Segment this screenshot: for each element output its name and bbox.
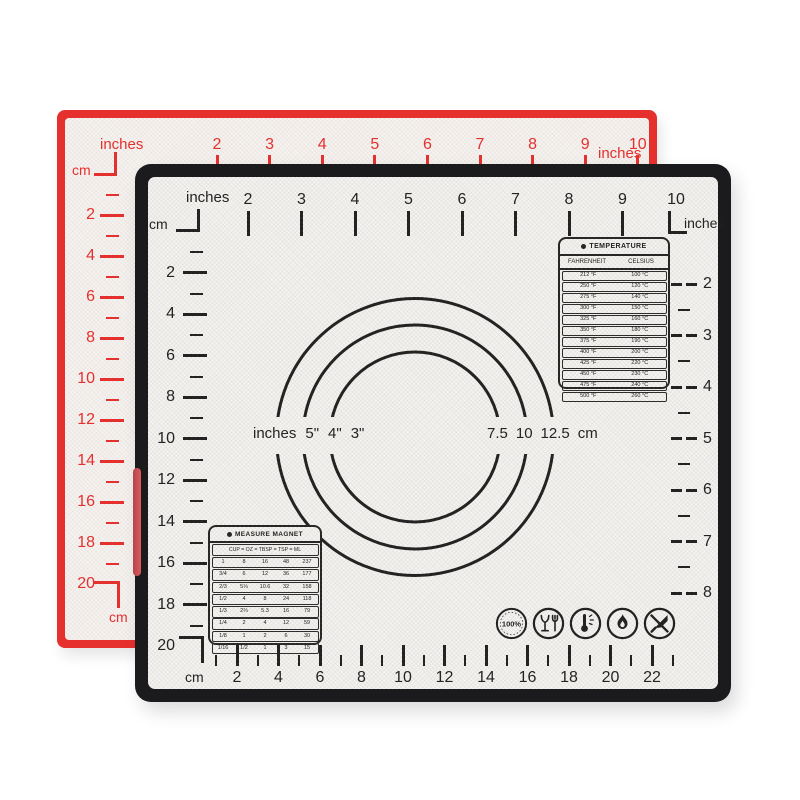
circle-cm-labels: 7.5 10 12.5 cm <box>487 426 598 441</box>
black-mat-markings: inches cm inches 20 cm inches 5" 4" 3" <box>135 164 731 702</box>
cm-ruler-minor-tick <box>106 563 119 565</box>
certification-icons: 100% <box>495 607 676 640</box>
inch-ruler-number: 3 <box>265 137 274 153</box>
temperature-cell: 250 °F <box>563 284 615 290</box>
measure-cell: 10.6 <box>255 585 276 591</box>
bottom-ruler-minor-tick <box>464 655 466 666</box>
temperature-cell: 375 °F <box>563 339 615 345</box>
measure-cell: 237 <box>297 560 318 566</box>
cm-ruler-minor-tick <box>106 440 119 442</box>
inch-ruler-number: 6 <box>458 192 467 208</box>
cm-ruler-tick <box>100 542 124 545</box>
inch-ruler-number: 10 <box>667 192 685 208</box>
cm-ruler-minor-tick <box>106 358 119 360</box>
bottom-ruler-tick <box>236 645 239 666</box>
temperature-row: 350 °F180 °C <box>562 326 667 336</box>
svg-text:100%: 100% <box>502 619 522 628</box>
cm-ruler-tick <box>100 255 124 258</box>
temperature-cell: 160 °C <box>614 317 666 323</box>
inch-ruler-tick <box>461 211 464 236</box>
cm-ruler-tick <box>183 479 207 482</box>
measure-magnet-table: MEASURE MAGNET CUP = OZ = TBSP = TSP = M… <box>208 525 322 645</box>
temperature-cell: 325 °F <box>563 317 615 323</box>
cm-ruler-number: 8 <box>143 389 175 405</box>
temperature-row: 275 °F140 °C <box>562 293 667 303</box>
measure-cell: 1/8 <box>213 634 234 640</box>
measure-cell: 36 <box>276 572 297 578</box>
bottom-ruler-minor-tick <box>630 655 632 666</box>
inch-ruler-number: 4 <box>318 137 327 153</box>
measure-cell: 177 <box>297 572 318 578</box>
bottom-ruler-number: 22 <box>643 670 661 686</box>
temperature-cell: 350 °F <box>563 328 615 334</box>
bottom-ruler-number: 18 <box>560 670 578 686</box>
inch-ruler-number: 6 <box>423 137 432 153</box>
inch-ruler-number: 4 <box>351 192 360 208</box>
cm-ruler-number: 18 <box>143 597 175 613</box>
temperature-cell: 190 °C <box>614 339 666 345</box>
black-corner-bracket <box>176 209 200 232</box>
circle-cm-75: 7.5 <box>487 426 508 441</box>
temperature-table: TEMPERATURE FAHRENHEIT CELSIUS 212 °F100… <box>558 237 670 389</box>
temperature-cell: 220 °C <box>614 361 666 367</box>
measure-cell: 4 <box>255 621 276 627</box>
right-ruler-minor-tick <box>678 515 690 517</box>
inch-ruler-number: 2 <box>244 192 253 208</box>
red-inches-label: inches <box>100 137 143 152</box>
temperature-cell: 475 °F <box>563 383 615 389</box>
bottom-ruler-number: 8 <box>357 670 366 686</box>
temperature-cell: 212 °F <box>563 273 615 279</box>
cm-ruler-minor-tick <box>190 376 203 378</box>
circle-left-unit: inches <box>253 426 296 441</box>
right-ruler-dash <box>686 489 697 492</box>
cm-ruler-tick <box>100 214 124 217</box>
red-mat-edge-tab <box>133 468 141 576</box>
circle-right-unit: cm <box>578 426 598 441</box>
measure-cell: 30 <box>297 634 318 640</box>
cm-ruler-tick <box>100 460 124 463</box>
temperature-cell: 400 °F <box>563 350 615 356</box>
bottom-ruler-minor-tick <box>672 655 674 666</box>
inch-ruler-tick <box>621 211 624 236</box>
bottom-ruler-minor-tick <box>257 655 259 666</box>
right-ruler-number: 5 <box>703 431 712 447</box>
bottom-ruler-minor-tick <box>215 655 217 666</box>
cm-ruler-minor-tick <box>106 276 119 278</box>
cm-ruler-number: 14 <box>63 453 95 469</box>
temperature-cell: 100 °C <box>614 273 666 279</box>
cm-ruler-number: 2 <box>143 265 175 281</box>
circle-inch-3: 3" <box>351 426 365 441</box>
measure-cell: 6 <box>276 634 297 640</box>
measure-cell: 2⅔ <box>234 609 255 615</box>
cm-ruler-minor-tick <box>190 334 203 336</box>
inch-ruler-number: 8 <box>528 137 537 153</box>
cm-ruler-number: 16 <box>143 555 175 571</box>
temperature-row: 500 °F260 °C <box>562 392 667 402</box>
measure-cell: 2 <box>255 634 276 640</box>
measure-row: 1/812630 <box>212 631 319 642</box>
right-ruler-dash <box>686 437 697 440</box>
temperature-cell: 240 °C <box>614 383 666 389</box>
black-inches-top-right-label: inches <box>684 216 724 230</box>
right-ruler-dash <box>686 283 697 286</box>
bottom-ruler-minor-tick <box>547 655 549 666</box>
cm-ruler-minor-tick <box>190 542 203 544</box>
measure-cell: 15 <box>297 646 318 652</box>
cm-ruler-minor-tick <box>106 317 119 319</box>
temperature-table-header: FAHRENHEIT CELSIUS <box>560 256 668 270</box>
measure-cell: 8 <box>255 597 276 603</box>
cm-ruler-number: 18 <box>63 535 95 551</box>
right-ruler-minor-tick <box>678 309 690 311</box>
cm-ruler-minor-tick <box>106 481 119 483</box>
measure-row: 3/461236177 <box>212 569 319 580</box>
bottom-ruler-minor-tick <box>381 655 383 666</box>
measure-cell: 118 <box>297 597 318 603</box>
bottom-ruler-tick <box>319 645 322 666</box>
cm-ruler-tick <box>183 354 207 357</box>
bottom-ruler-minor-tick <box>423 655 425 666</box>
black-bottom-corner-bracket <box>179 636 204 663</box>
temperature-cell: 140 °C <box>614 295 666 301</box>
cm-ruler-tick <box>183 562 207 565</box>
measure-row: 1/32⅔5.31679 <box>212 606 319 617</box>
measure-row: 1/4241259 <box>212 618 319 629</box>
bottom-ruler-number: 16 <box>519 670 537 686</box>
inch-ruler-number: 9 <box>618 192 627 208</box>
right-ruler-dash <box>671 334 682 337</box>
measure-cell: 24 <box>276 597 297 603</box>
bottom-ruler-tick <box>277 645 280 666</box>
measure-cell: 48 <box>276 560 297 566</box>
inch-ruler-tick <box>247 211 250 236</box>
measure-table-title: MEASURE MAGNET <box>210 527 320 543</box>
temperature-cell: 300 °F <box>563 306 615 312</box>
cm-ruler-number: 6 <box>143 348 175 364</box>
right-ruler-number: 2 <box>703 276 712 292</box>
red-cm-bottom-label: cm <box>109 610 128 624</box>
bottom-ruler-minor-tick <box>589 655 591 666</box>
temperature-cell: 180 °C <box>614 328 666 334</box>
inch-ruler-number: 8 <box>565 192 574 208</box>
cm-ruler-number: 14 <box>143 514 175 530</box>
temperature-cell: 150 °C <box>614 306 666 312</box>
inch-ruler-number: 2 <box>213 137 222 153</box>
measure-cell: 16 <box>255 560 276 566</box>
temperature-cell: 450 °F <box>563 372 615 378</box>
measure-cell: 3/4 <box>213 572 234 578</box>
right-ruler-dash <box>671 540 682 543</box>
black-cm-corner-label: cm <box>149 217 168 231</box>
measure-row: 2/35⅓10.632158 <box>212 582 319 593</box>
temperature-row: 450 °F230 °C <box>562 370 667 380</box>
measure-cell: 32 <box>276 585 297 591</box>
cm-ruler-minor-tick <box>190 293 203 295</box>
open-flame-icon <box>606 607 639 640</box>
cm-ruler-number: 4 <box>63 248 95 264</box>
black-inches-label: inches <box>186 190 229 205</box>
cm-ruler-tick <box>183 520 207 523</box>
temperature-rows: 212 °F100 °C250 °F120 °C275 °F140 °C300 … <box>560 271 668 402</box>
temperature-row: 325 °F160 °C <box>562 315 667 325</box>
right-ruler-number: 3 <box>703 328 712 344</box>
cm-ruler-minor-tick <box>106 522 119 524</box>
red-cm-corner-label: cm <box>72 163 91 177</box>
temperature-cell: 275 °F <box>563 295 615 301</box>
temperature-cell: 230 °C <box>614 372 666 378</box>
measure-cell: 5⅓ <box>234 585 255 591</box>
right-ruler-number: 8 <box>703 585 712 601</box>
measure-cell: 2/3 <box>213 585 234 591</box>
bullet-dot-icon <box>581 244 586 249</box>
food-safe-glass-fork-icon <box>532 607 565 640</box>
cm-ruler-number: 2 <box>63 207 95 223</box>
inch-ruler-number: 10 <box>629 137 647 153</box>
bottom-ruler-number: 20 <box>602 670 620 686</box>
inch-ruler-tick <box>407 211 410 236</box>
temperature-row: 400 °F200 °C <box>562 348 667 358</box>
inch-ruler-number: 5 <box>404 192 413 208</box>
bottom-ruler-number: 6 <box>316 670 325 686</box>
cm-ruler-number: 12 <box>63 412 95 428</box>
cm-ruler-minor-tick <box>106 235 119 237</box>
circle-inch-labels: inches 5" 4" 3" <box>253 426 364 441</box>
measure-cell: 6 <box>234 572 255 578</box>
temperature-title-text: TEMPERATURE <box>589 243 646 250</box>
right-ruler-number: 4 <box>703 379 712 395</box>
temperature-row: 250 °F120 °C <box>562 282 667 292</box>
measure-cell: 2 <box>234 621 255 627</box>
cm-ruler-minor-tick <box>190 251 203 253</box>
red-terminal-number: 20 <box>63 576 95 592</box>
inch-ruler-number: 7 <box>476 137 485 153</box>
bottom-ruler-tick <box>402 645 405 666</box>
right-ruler-minor-tick <box>678 412 690 414</box>
measure-cell: 16 <box>276 609 297 615</box>
right-ruler-dash <box>686 386 697 389</box>
measure-cell: 4 <box>234 597 255 603</box>
measure-row: 1/24824118 <box>212 594 319 605</box>
measure-cell: 158 <box>297 585 318 591</box>
cm-ruler-tick <box>183 396 207 399</box>
cm-ruler-number: 12 <box>143 472 175 488</box>
cm-ruler-tick <box>100 378 124 381</box>
right-ruler-dash <box>671 283 682 286</box>
bottom-ruler-tick <box>443 645 446 666</box>
bottom-ruler-minor-tick <box>506 655 508 666</box>
temperature-cell: 200 °C <box>614 350 666 356</box>
bottom-ruler-number: 2 <box>233 670 242 686</box>
temperature-row: 375 °F190 °C <box>562 337 667 347</box>
measure-row: 1/161/21315 <box>212 643 319 654</box>
right-ruler-minor-tick <box>678 463 690 465</box>
temperature-cell: 260 °C <box>614 394 666 400</box>
cm-ruler-number: 6 <box>63 289 95 305</box>
bottom-ruler-tick <box>360 645 363 666</box>
circle-cm-125: 12.5 <box>541 426 570 441</box>
right-ruler-dash <box>671 592 682 595</box>
red-bottom-corner-bracket <box>93 581 120 608</box>
measure-cell: 5.3 <box>255 609 276 615</box>
cm-ruler-tick <box>183 313 207 316</box>
cm-ruler-number: 4 <box>143 306 175 322</box>
bottom-ruler-tick <box>568 645 571 666</box>
black-pastry-mat: inches cm inches 20 cm inches 5" 4" 3" <box>135 164 731 702</box>
circle-inch-4: 4" <box>328 426 342 441</box>
temperature-cell: 425 °F <box>563 361 615 367</box>
inch-ruler-number: 9 <box>581 137 590 153</box>
measure-cell: 1 <box>213 560 234 566</box>
measure-cell: 1/3 <box>213 609 234 615</box>
cm-ruler-tick <box>100 419 124 422</box>
measure-cell: 1 <box>234 634 255 640</box>
cm-ruler-minor-tick <box>190 583 203 585</box>
measure-cell: 8 <box>234 560 255 566</box>
circle-cm-10: 10 <box>516 426 533 441</box>
right-ruler-number: 6 <box>703 482 712 498</box>
black-cm-bottom-label: cm <box>185 670 204 684</box>
cm-ruler-tick <box>100 501 124 504</box>
measure-cell: 1/4 <box>213 621 234 627</box>
inch-ruler-tick <box>568 211 571 236</box>
measure-row: 181648237 <box>212 557 319 568</box>
inch-ruler-number: 5 <box>370 137 379 153</box>
bottom-ruler-minor-tick <box>340 655 342 666</box>
bottom-ruler-number: 12 <box>436 670 454 686</box>
right-ruler-minor-tick <box>678 566 690 568</box>
temperature-row: 212 °F100 °C <box>562 271 667 281</box>
temperature-cell: 120 °C <box>614 284 666 290</box>
cm-ruler-tick <box>100 296 124 299</box>
cm-ruler-minor-tick <box>106 399 119 401</box>
heat-resistant-thermometer-icon <box>569 607 602 640</box>
temperature-row: 475 °F240 °C <box>562 381 667 391</box>
measure-cell: 79 <box>297 609 318 615</box>
right-ruler-dash <box>686 540 697 543</box>
cm-ruler-number: 10 <box>63 371 95 387</box>
bottom-ruler-number: 14 <box>477 670 495 686</box>
cm-ruler-number: 10 <box>143 431 175 447</box>
measure-cell: 12 <box>255 572 276 578</box>
inch-ruler-number: 3 <box>297 192 306 208</box>
bottom-ruler-number: 10 <box>394 670 412 686</box>
measure-cell: 1/16 <box>213 646 234 652</box>
cm-ruler-minor-tick <box>190 500 203 502</box>
inch-ruler-number: 7 <box>511 192 520 208</box>
right-ruler-minor-tick <box>678 360 690 362</box>
bottom-ruler-tick <box>526 645 529 666</box>
cm-ruler-tick <box>183 271 207 274</box>
bottom-ruler-number: 4 <box>274 670 283 686</box>
inch-ruler-tick <box>300 211 303 236</box>
measure-table-header: CUP = OZ = TBSP = TSP = ML <box>212 544 319 556</box>
right-ruler-number: 7 <box>703 534 712 550</box>
right-ruler-dash <box>671 437 682 440</box>
measure-cell: 59 <box>297 621 318 627</box>
measure-cell: 1 <box>255 646 276 652</box>
cm-ruler-minor-tick <box>106 194 119 196</box>
right-ruler-dash <box>686 592 697 595</box>
right-ruler-dash <box>686 334 697 337</box>
temperature-row: 300 °F150 °C <box>562 304 667 314</box>
circle-inch-5: 5" <box>305 426 319 441</box>
temperature-cell: 500 °F <box>563 394 615 400</box>
no-knife-cut-icon <box>643 607 676 640</box>
cm-ruler-tick <box>100 337 124 340</box>
cm-ruler-number: 8 <box>63 330 95 346</box>
cm-ruler-minor-tick <box>190 417 203 419</box>
measure-cell: 12 <box>276 621 297 627</box>
bottom-ruler-minor-tick <box>298 655 300 666</box>
celsius-column-header: CELSIUS <box>614 259 668 265</box>
temperature-table-title: TEMPERATURE <box>560 239 668 256</box>
bottom-ruler-tick <box>651 645 654 666</box>
measure-title-text: MEASURE MAGNET <box>235 531 303 538</box>
product-photo: inches cm 20 cm inches 23456789102468101… <box>0 0 800 800</box>
cm-ruler-minor-tick <box>190 625 203 627</box>
measure-cell: 1/2 <box>213 597 234 603</box>
cm-ruler-number: 16 <box>63 494 95 510</box>
fahrenheit-column-header: FAHRENHEIT <box>560 259 614 265</box>
bullet-dot-icon <box>227 532 232 537</box>
bottom-ruler-tick <box>485 645 488 666</box>
cm-ruler-tick <box>183 437 207 440</box>
black-terminal-number: 20 <box>143 638 175 654</box>
right-ruler-dash <box>671 489 682 492</box>
temperature-row: 425 °F220 °C <box>562 359 667 369</box>
inch-ruler-tick <box>354 211 357 236</box>
red-corner-bracket <box>94 152 117 176</box>
cm-ruler-tick <box>183 603 207 606</box>
bottom-ruler-tick <box>609 645 612 666</box>
right-ruler-dash <box>671 386 682 389</box>
inch-ruler-tick <box>514 211 517 236</box>
cm-ruler-minor-tick <box>190 459 203 461</box>
platinum-silicone-100-icon: 100% <box>495 607 528 640</box>
measure-rows: 1816482373/4612361772/35⅓10.6321581/2482… <box>210 557 320 654</box>
